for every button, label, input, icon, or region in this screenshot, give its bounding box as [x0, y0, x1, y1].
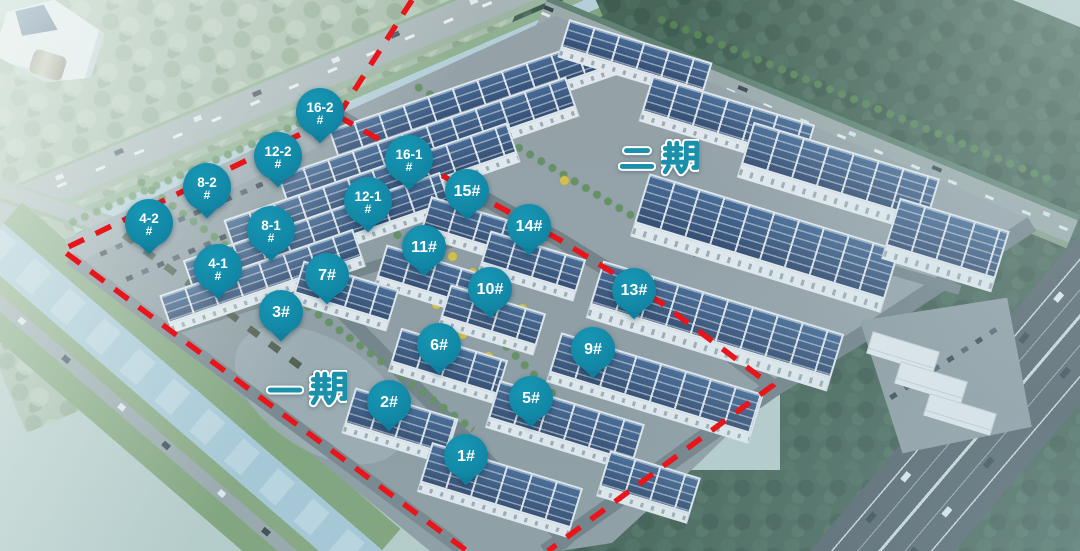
- marker-label-line2: #: [215, 271, 222, 282]
- marker-8-1[interactable]: 8-1 #: [247, 206, 295, 258]
- marker-label: 11#: [411, 239, 437, 256]
- marker-label-line2: #: [317, 115, 324, 126]
- marker-head: 8-1 #: [247, 206, 295, 254]
- marker-7[interactable]: 7#: [305, 253, 349, 301]
- marker-10[interactable]: 10#: [468, 267, 512, 315]
- marker-label: 1#: [457, 448, 475, 465]
- marker-label: 13#: [621, 282, 648, 299]
- marker-head: 16-2 #: [296, 88, 344, 136]
- marker-12-2[interactable]: 12-2 #: [254, 132, 302, 184]
- marker-head: 2#: [367, 380, 411, 424]
- marker-head: 12-1 #: [344, 177, 392, 225]
- marker-head: 13#: [612, 268, 656, 312]
- marker-label-line2: #: [204, 190, 211, 201]
- marker-head: 15#: [445, 169, 489, 213]
- marker-5[interactable]: 5#: [509, 376, 553, 424]
- marker-label-line2: #: [146, 226, 153, 237]
- marker-16-2[interactable]: 16-2 #: [296, 88, 344, 140]
- marker-label: 6#: [430, 337, 448, 354]
- marker-label-line2: #: [268, 233, 275, 244]
- marker-head: 4-1 #: [194, 244, 242, 292]
- marker-head: 12-2 #: [254, 132, 302, 180]
- marker-label: 9#: [584, 341, 602, 358]
- marker-head: 7#: [305, 253, 349, 297]
- marker-label: 7#: [318, 267, 336, 284]
- marker-13[interactable]: 13#: [612, 268, 656, 316]
- marker-4-2[interactable]: 4-2 #: [125, 199, 173, 251]
- marker-head: 5#: [509, 376, 553, 420]
- phase-2-label: 二期: [618, 139, 699, 177]
- marker-label-line2: #: [275, 159, 282, 170]
- marker-label: 2#: [380, 394, 398, 411]
- marker-1[interactable]: 1#: [444, 434, 488, 482]
- marker-11[interactable]: 11#: [402, 225, 446, 273]
- marker-label-line2: #: [406, 162, 413, 173]
- marker-head: 16-1 #: [385, 135, 433, 183]
- marker-label: 15#: [454, 183, 481, 200]
- building-markers: 16-2 # 12-2 # 16-1 # 8-2 #: [0, 0, 1080, 551]
- marker-4-1[interactable]: 4-1 #: [194, 244, 242, 296]
- marker-15[interactable]: 15#: [445, 169, 489, 217]
- marker-head: 8-2 #: [183, 163, 231, 211]
- marker-head: 10#: [468, 267, 512, 311]
- marker-14[interactable]: 14#: [507, 204, 551, 252]
- marker-label: 5#: [522, 390, 540, 407]
- marker-label: 14#: [516, 218, 543, 235]
- marker-label: 3#: [272, 304, 290, 321]
- marker-head: 6#: [417, 323, 461, 367]
- marker-head: 14#: [507, 204, 551, 248]
- marker-2[interactable]: 2#: [367, 380, 411, 428]
- phase-1-label: 一期: [266, 370, 347, 408]
- marker-head: 4-2 #: [125, 199, 173, 247]
- marker-label: 10#: [477, 281, 504, 298]
- marker-6[interactable]: 6#: [417, 323, 461, 371]
- marker-8-2[interactable]: 8-2 #: [183, 163, 231, 215]
- marker-head: 1#: [444, 434, 488, 478]
- marker-head: 3#: [259, 290, 303, 334]
- marker-head: 9#: [571, 327, 615, 371]
- marker-9[interactable]: 9#: [571, 327, 615, 375]
- marker-12-1[interactable]: 12-1 #: [344, 177, 392, 229]
- marker-16-1[interactable]: 16-1 #: [385, 135, 433, 187]
- marker-3[interactable]: 3#: [259, 290, 303, 338]
- marker-head: 11#: [402, 225, 446, 269]
- marker-label-line2: #: [365, 204, 372, 215]
- aerial-masterplan: 16-2 # 12-2 # 16-1 # 8-2 #: [0, 0, 1080, 551]
